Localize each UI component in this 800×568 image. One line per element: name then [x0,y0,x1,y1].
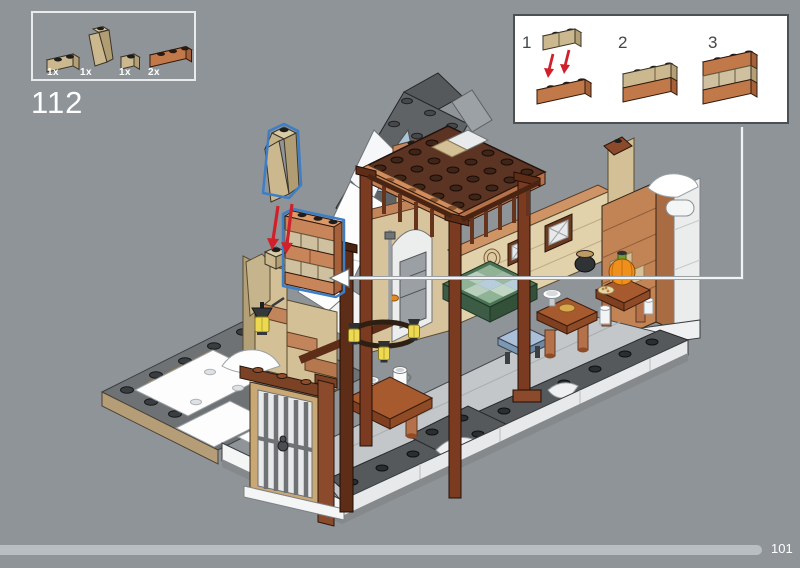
page-number: 101 [771,541,793,556]
part-brick-1x3-nougat [150,46,192,67]
part-count: 1x [119,67,131,78]
parts-callout: 1x 1x 1x 2x [31,11,196,81]
subassembly-callout: 1 2 3 [513,14,789,124]
substep-2-art [623,63,677,103]
barred-gate [250,382,320,506]
progress-bar[interactable] [0,545,762,555]
pie [559,304,575,312]
substep-number: 2 [618,33,627,52]
part-count: 2x [148,67,160,78]
lantern [348,323,360,345]
step-number: 112 [31,85,83,121]
substep-1-art [537,29,591,105]
part-count: 1x [80,67,92,78]
highlight-slope-piece [263,124,301,202]
cauldron [575,251,595,273]
substep-number: 1 [522,33,531,52]
substep-3-art [703,51,757,105]
substep-number: 3 [708,33,717,52]
part-slope-tan [89,27,113,66]
instruction-page: 1x 1x 1x 2x 112 1 2 3 [0,0,800,568]
subassembly-illustrations: 1 2 3 [515,16,787,122]
part-count: 1x [47,67,59,78]
highlight-stack [283,209,344,297]
lantern [378,341,390,363]
lantern [408,319,420,341]
